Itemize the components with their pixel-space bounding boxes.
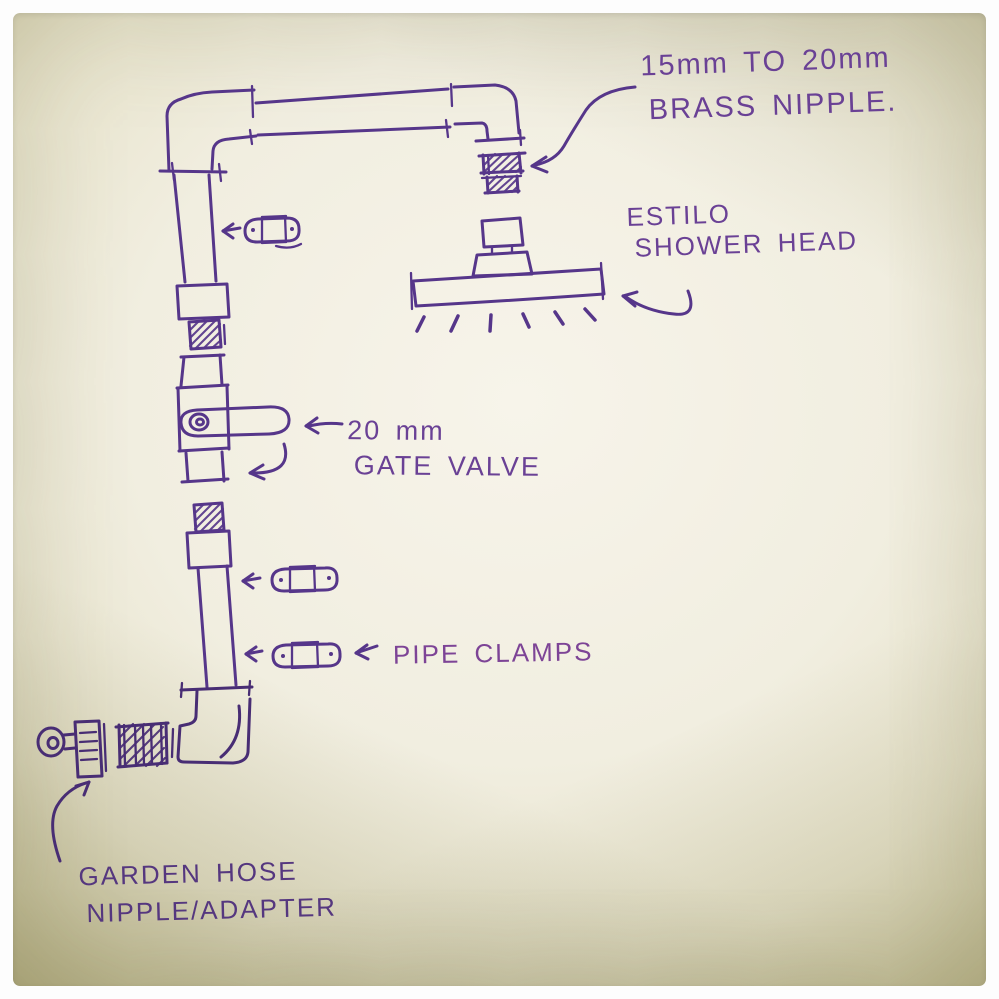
label-pipe-clamps: PIPE CLAMPS [393, 634, 594, 671]
bottom-brass-nipple [116, 723, 168, 767]
top-left-elbow [160, 86, 256, 181]
label-gate-valve: 20 mm GATE VALVE [347, 413, 542, 485]
pipe-clamp-1 [245, 216, 301, 248]
label-garden-hose-line2: NIPPLE/ADAPTER [86, 889, 337, 933]
upper-thread-hatch [190, 321, 221, 348]
shower-head-sketch [411, 218, 604, 331]
garden-hose-adapter [38, 721, 106, 777]
top-right-elbow [446, 84, 524, 145]
sketch-svg [0, 0, 999, 999]
label-brass-nipple: 15mm TO 20mm BRASS NIPPLE. [640, 36, 899, 133]
valve-pivot [190, 414, 208, 430]
gate-valve-sketch [177, 355, 289, 482]
gate-valve-rotation-arrow [250, 444, 286, 479]
label-brass-nipple-line2: BRASS NIPPLE. [648, 80, 898, 133]
label-garden-hose: GARDEN HOSE NIPPLE/ADAPTER [78, 852, 337, 933]
label-shower-head: ESTILO SHOWER HEAD [626, 194, 858, 264]
pipe-clamp-2 [272, 566, 337, 592]
adapter-collar [38, 728, 64, 756]
pipe-clamp-1-arrow [223, 224, 240, 238]
adapter-collar-center [48, 738, 58, 749]
label-shower-head-line1: ESTILO [626, 198, 731, 232]
upper-wall-pipe [174, 175, 229, 349]
label-gate-valve-line1: 20 mm [347, 415, 445, 446]
pipe-clamps-label-arrow [356, 645, 377, 659]
label-pipe-clamps-text: PIPE CLAMPS [393, 636, 594, 669]
shower-head-arrow [623, 291, 691, 314]
lower-wall-pipe [187, 503, 236, 687]
label-gate-valve-line2: GATE VALVE [354, 448, 541, 485]
pipe-clamp-3 [273, 642, 340, 668]
lower-thread-hatch [195, 504, 223, 531]
pipe-clamp-3-arrow-left [246, 647, 262, 661]
label-brass-nipple-line1: 15mm TO 20mm [640, 42, 891, 83]
gate-valve-arrow [306, 418, 342, 433]
spray-dashes [417, 309, 595, 331]
brass-nipple-sketch [479, 153, 525, 193]
valve-pivot-center [197, 419, 204, 425]
pipe-clamp-2-arrow [243, 574, 260, 588]
bottom-elbow [172, 681, 252, 763]
garden-hose-arrow [53, 782, 89, 861]
brass-nipple-arrow [532, 87, 635, 172]
top-horizontal-pipe [256, 89, 450, 135]
screenshot-root: { "annotations": { "brass_nipple": { "li… [0, 0, 999, 999]
label-garden-hose-line1: GARDEN HOSE [78, 856, 298, 892]
